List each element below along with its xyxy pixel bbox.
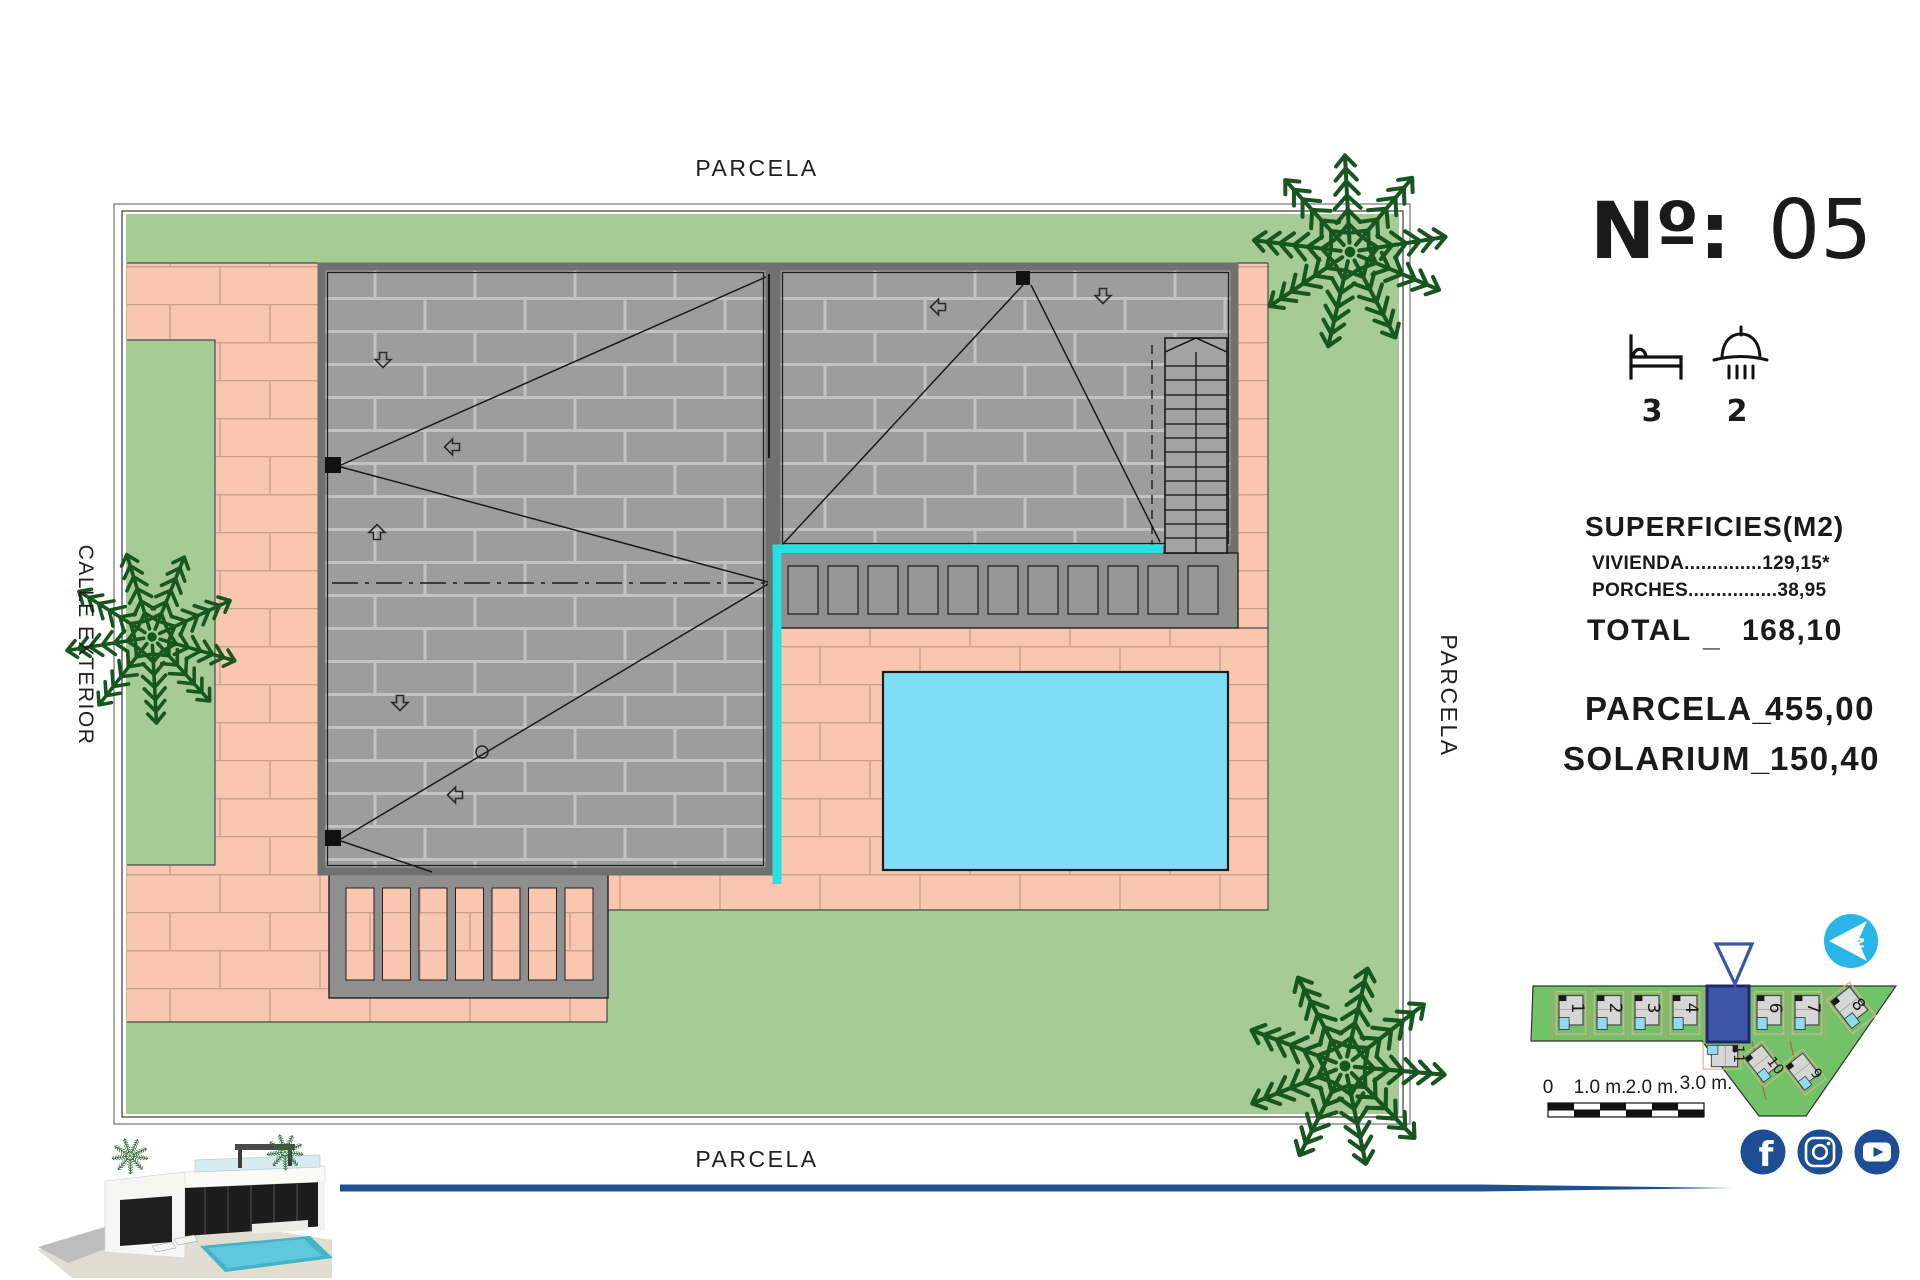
surfaces-porches: PORCHES................38,95 [1592, 580, 1827, 601]
minimap-highlighted-plot [1707, 986, 1749, 1042]
surfaces-solarium-value: 150,40 [1770, 740, 1880, 777]
surfaces-parcela-label: PARCELA_ [1585, 690, 1772, 727]
villa-render-image [38, 1134, 333, 1278]
villa-plan-sheet: PARCELA PARCELA PARCELA CALLE EXTERIOR N… [0, 0, 1920, 1280]
scale-tick-label: 2.0 m. [1626, 1077, 1679, 1098]
compass-north-letter: N [1851, 938, 1868, 949]
site-plan: PARCELA PARCELA PARCELA CALLE EXTERIOR [30, 134, 1473, 1195]
youtube-icon[interactable] [1855, 1130, 1900, 1175]
label-parcela-bottom: PARCELA [695, 1146, 818, 1172]
surfaces-parcela-value: 455,00 [1765, 690, 1875, 727]
shower-icon [1714, 327, 1767, 378]
surfaces-total-label: TOTAL [1587, 614, 1692, 647]
minimap-plot-number: 7 [1803, 1003, 1823, 1014]
swimming-pool [883, 672, 1228, 870]
surfaces-total-separator: _ [1702, 620, 1721, 653]
bed-icon [1631, 336, 1681, 378]
bedroom-count: 3 [1642, 394, 1663, 429]
scale-bar: 0 1.0 m. 2.0 m. 3.0 m. [1543, 1073, 1733, 1117]
scale-tick-label: 1.0 m. [1574, 1077, 1627, 1098]
minimap-plot-number: 6 [1765, 1003, 1785, 1014]
minimap-plot-number: 4 [1681, 1003, 1701, 1014]
scale-tick-label: 0 [1543, 1077, 1554, 1098]
plot-number-label: Nº: [1590, 187, 1730, 277]
social-links: f [1741, 1130, 1900, 1176]
porch-strip [773, 553, 1238, 628]
plan-canvas: PARCELA PARCELA PARCELA CALLE EXTERIOR N… [0, 0, 1920, 1280]
surfaces-solarium-label: SOLARIUM_ [1563, 740, 1771, 777]
instagram-icon[interactable] [1798, 1130, 1843, 1175]
svg-text:f: f [1759, 1135, 1775, 1175]
compass: N [1824, 914, 1878, 968]
pergola [329, 869, 608, 998]
label-parcela-top: PARCELA [695, 155, 818, 181]
minimap-plot-number: 2 [1605, 1003, 1625, 1014]
scale-tick-label: 3.0 m. [1680, 1073, 1733, 1094]
surfaces-block: SUPERFICIES(M2) VIVIENDA..............12… [1563, 511, 1880, 777]
surfaces-vivienda: VIVIENDA..............129,15* [1592, 553, 1830, 574]
scale-bar-graphic [1548, 1103, 1704, 1117]
label-calle-exterior: CALLE EXTERIOR [74, 545, 97, 746]
minimap-plot-number: 3 [1643, 1003, 1663, 1014]
minimap-flag-marker [1716, 944, 1752, 984]
label-parcela-right: PARCELA [1436, 634, 1462, 757]
surfaces-total-value: 168,10 [1742, 614, 1843, 647]
info-panel: Nº: 05 3 2 SUPERFICIES(M2) VIVIENDA.....… [1563, 183, 1880, 777]
minimap-plot-number: 11 [1730, 1045, 1746, 1063]
surfaces-title: SUPERFICIES(M2) [1585, 511, 1844, 542]
bathroom-count: 2 [1727, 394, 1748, 429]
minimap-plot-number: 1 [1567, 1003, 1587, 1014]
plot-number-value: 05 [1768, 183, 1872, 278]
facebook-icon[interactable]: f [1741, 1130, 1786, 1176]
bottom-accent-line [340, 1185, 1732, 1192]
